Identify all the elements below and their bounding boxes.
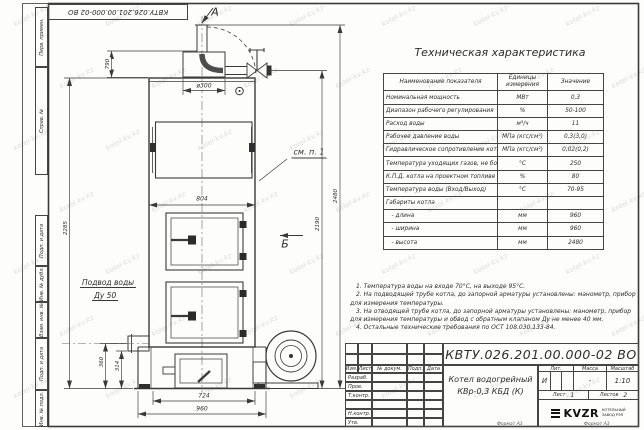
mass-value: - bbox=[573, 371, 607, 391]
rotated-designation: КВТУ.026.201.00.000-02 ВО bbox=[68, 8, 168, 16]
panel-hinge-right bbox=[249, 143, 255, 152]
spec-table-body: Номинальная мощностьМВт0,3Диапазон рабоч… bbox=[384, 91, 604, 249]
document-name: Котел водогрейный КВр-0,3 КБД (К) bbox=[443, 365, 538, 427]
spec-row: Диапазон рабочего регулирования%50-100 bbox=[384, 104, 604, 117]
lower-door bbox=[166, 282, 243, 343]
frame-cell-podp-data-2: Подп. и дата bbox=[35, 338, 48, 390]
dim-360: 360 bbox=[99, 356, 105, 369]
rotated-designation-cell: КВТУ.026.201.00.000-02 ВО bbox=[48, 4, 188, 20]
frame-cell-sprav-no: Справ. № bbox=[35, 67, 48, 175]
title-block-designation: КВТУ.026.201.00.000-02 ВО bbox=[443, 343, 639, 365]
spec-header-units: Единицы измерения bbox=[498, 74, 548, 91]
fan-duct bbox=[253, 362, 266, 383]
flue-elbow bbox=[202, 54, 223, 71]
dim-2190: 2190 bbox=[315, 216, 321, 232]
frame-cell-podp-data-1: Подп. и дата bbox=[35, 215, 48, 266]
format-label-left: Формат А3 bbox=[497, 422, 523, 427]
notes: 1. Температура воды на входе 70°С, на вы… bbox=[350, 283, 638, 333]
fuel-door bbox=[166, 213, 243, 270]
frame-cell-inv-podl: Инв. № подл. bbox=[35, 390, 48, 427]
spec-row: - длинамм960 bbox=[384, 210, 604, 223]
frame-cell-perv-primen: Перв. примен. bbox=[35, 7, 48, 67]
format-label-right: Формат А3 bbox=[584, 422, 610, 427]
callout-leader bbox=[259, 159, 287, 181]
fan-base bbox=[258, 383, 318, 389]
dim-diam-300: ø300 bbox=[195, 83, 212, 90]
frame-cell-inv-dubl: Инв. № дубл. bbox=[35, 266, 48, 302]
spec-table-title: Техническая характеристика bbox=[395, 46, 605, 59]
spec-table: Наименование показателя Единицы измерени… bbox=[383, 73, 604, 250]
see-item-callout: см. п. 1 bbox=[292, 148, 327, 159]
spec-header-row: Наименование показателя Единицы измерени… bbox=[384, 74, 604, 91]
note-item: 2. На подводящей трубе котла, до запорно… bbox=[350, 291, 638, 308]
spec-row: К.П.Д. котла на проектном топливе%80 bbox=[384, 170, 604, 183]
spec-row: - ширинамм960 bbox=[384, 223, 604, 236]
frame-cell-vzam-inv: Взам. инв. № bbox=[35, 302, 48, 338]
dim-790: 790 bbox=[105, 58, 111, 71]
dim-960: 960 bbox=[195, 406, 208, 413]
spec-row: Габариты котла bbox=[384, 196, 604, 209]
panel-hinge-left bbox=[150, 143, 156, 152]
note-item: 1. Температура воды на входе 70°С, на вы… bbox=[350, 283, 638, 291]
spec-row: Расход водым³/ч11 bbox=[384, 117, 604, 130]
spec-row: Номинальная мощностьМВт0,3 bbox=[384, 91, 604, 104]
spec-row: Температура уходящих газов, не более°С25… bbox=[384, 157, 604, 170]
kvzr-logo-icon bbox=[551, 409, 560, 418]
note-item: 3. На отводящей трубе котла, до запорной… bbox=[350, 308, 638, 325]
water-supply-label-line2: Ду 50 bbox=[92, 291, 118, 301]
title-block: Изм.Лист№ докум.Подп.ДатаРазраб.Пров.Т.к… bbox=[345, 343, 639, 427]
spec-header-value: Значение bbox=[548, 74, 604, 91]
water-supply-label-line1: Подвод воды bbox=[80, 278, 136, 288]
ash-door-handle bbox=[198, 371, 210, 382]
dim-2285: 2285 bbox=[63, 220, 69, 236]
spec-header-name: Наименование показателя bbox=[384, 74, 498, 91]
spec-row: Гидравлическое сопротивление котлаМПа (к… bbox=[384, 144, 604, 157]
note-item: 4. Остальные технические требования по О… bbox=[350, 324, 638, 332]
section-a-label: А bbox=[211, 6, 219, 19]
kvzr-logo-text: KVZR bbox=[563, 407, 598, 420]
spec-row: Рабочее давление водыМПа (кгс/см²)0,3(3,… bbox=[384, 131, 604, 144]
outlet-pipe bbox=[225, 67, 247, 75]
section-b-label: Б bbox=[281, 238, 289, 251]
dim-724: 724 bbox=[197, 393, 210, 400]
scale-value: 1:10 bbox=[606, 371, 639, 391]
dim-804: 804 bbox=[195, 196, 208, 203]
dim-314: 314 bbox=[115, 360, 121, 373]
spec-row: - высотамм2480 bbox=[384, 236, 604, 249]
upper-panel bbox=[156, 122, 253, 178]
drawing-sheet: kotel-kv.kzkotel-kv.kzkotel-kv.kzkotel-k… bbox=[0, 0, 644, 430]
spec-row: Температура воды (Вход/Выход)°С70-95 bbox=[384, 183, 604, 196]
dim-2480: 2480 bbox=[333, 188, 339, 204]
company-name: КОТЕЛЬНЫЙ ЗАВОД РЭП bbox=[602, 408, 626, 417]
